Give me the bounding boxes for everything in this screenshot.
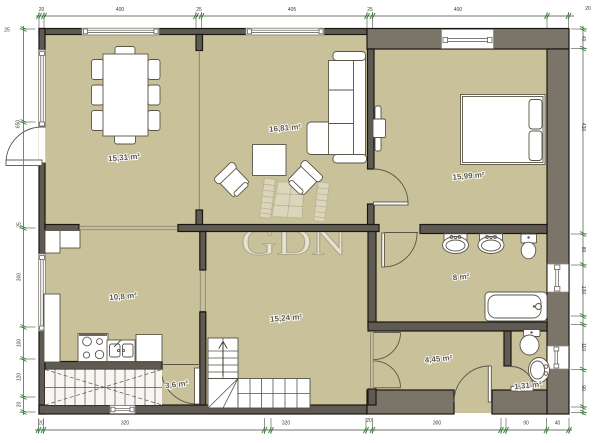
svg-text:25: 25: [4, 28, 10, 34]
svg-text:130: 130: [580, 286, 586, 295]
svg-text:120: 120: [17, 373, 23, 382]
svg-text:405: 405: [288, 7, 297, 13]
svg-text:8 m²: 8 m²: [452, 272, 470, 282]
svg-text:300: 300: [17, 273, 23, 282]
svg-text:100: 100: [17, 339, 23, 348]
svg-text:90: 90: [523, 421, 529, 427]
svg-text:90: 90: [580, 385, 586, 391]
svg-text:20: 20: [39, 7, 45, 13]
svg-text:20: 20: [38, 421, 44, 427]
svg-text:400: 400: [116, 7, 125, 13]
svg-text:300: 300: [433, 421, 442, 427]
svg-text:110: 110: [580, 343, 586, 351]
svg-text:25: 25: [367, 7, 373, 13]
svg-text:650: 650: [16, 120, 22, 129]
svg-text:20: 20: [585, 6, 591, 12]
svg-text:20: 20: [366, 418, 372, 424]
svg-text:40: 40: [555, 421, 561, 427]
svg-text:25: 25: [17, 222, 23, 228]
svg-text:20: 20: [17, 402, 23, 408]
svg-text:320: 320: [282, 421, 291, 427]
svg-text:320: 320: [121, 421, 130, 427]
svg-text:80: 80: [580, 247, 586, 253]
svg-text:430: 430: [580, 123, 586, 132]
svg-text:40: 40: [580, 36, 586, 42]
svg-text:25: 25: [196, 7, 202, 13]
svg-text:400: 400: [454, 7, 463, 13]
